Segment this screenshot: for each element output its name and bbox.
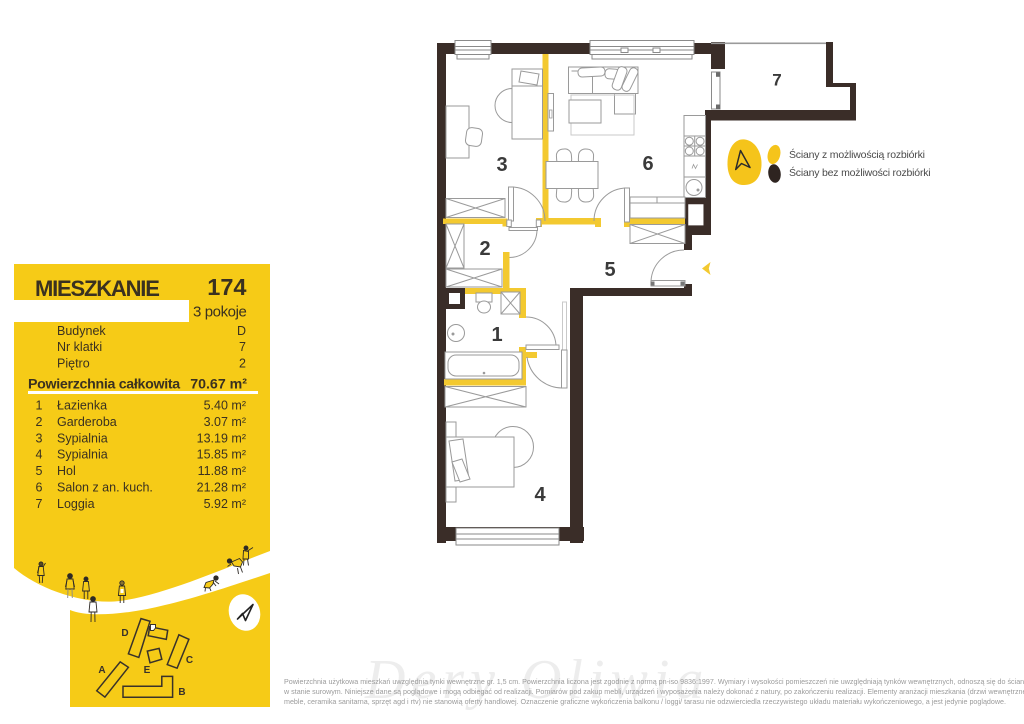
- svg-text:Ściany bez możliwości rozbiórk: Ściany bez możliwości rozbiórki: [789, 166, 930, 179]
- svg-text:5: 5: [604, 259, 615, 281]
- svg-text:Ściany z możliwością rozbiórki: Ściany z możliwością rozbiórki: [789, 148, 925, 161]
- svg-text:3: 3: [496, 154, 507, 176]
- svg-text:6: 6: [642, 153, 653, 175]
- svg-text:2: 2: [479, 238, 490, 260]
- svg-text:4: 4: [534, 484, 546, 506]
- svg-text:7: 7: [772, 71, 781, 90]
- svg-text:1: 1: [491, 324, 502, 346]
